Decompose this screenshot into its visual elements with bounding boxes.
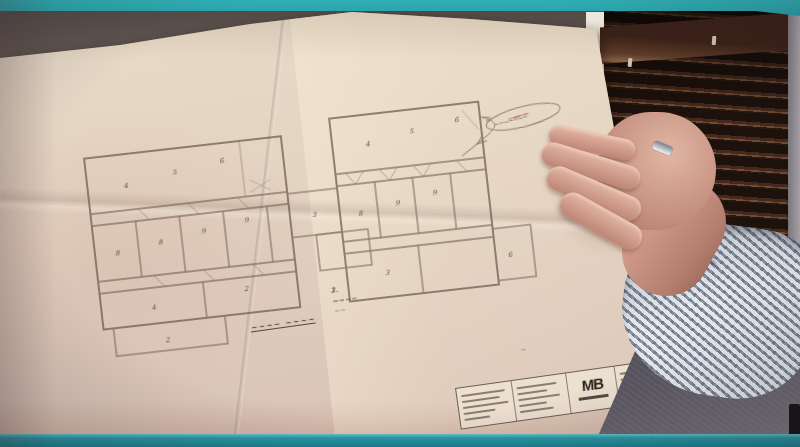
room-number: 3 xyxy=(385,269,391,278)
room-number: 4 xyxy=(365,140,371,149)
room-number: 9 xyxy=(201,227,207,236)
room-number: 2 xyxy=(243,285,249,294)
illegible-text-line xyxy=(518,389,548,395)
room-number: 8 xyxy=(158,238,164,247)
room-number: 8 xyxy=(358,209,364,218)
room-number: 5 xyxy=(172,168,178,177)
room-number: 6 xyxy=(507,251,513,260)
room-number: 6 xyxy=(219,157,225,166)
illegible-text-line xyxy=(464,415,490,421)
illegible-text-line xyxy=(519,401,547,407)
title-block-column-signatures xyxy=(456,381,516,428)
teal-accent-bar-bottom xyxy=(0,434,800,447)
spec-list-line: 3. ~~~~ xyxy=(330,282,358,306)
illegible-text-line xyxy=(464,409,496,415)
room-number: 9 xyxy=(395,199,401,208)
room-number: 6 xyxy=(454,116,460,125)
dark-object-edge xyxy=(789,404,800,437)
title-block-column-fields xyxy=(511,374,571,421)
illegible-text-line xyxy=(519,393,561,401)
room-number: 8 xyxy=(115,249,121,258)
room-number: 3 xyxy=(312,211,318,220)
video-frame: 4 5 6 8 8 9 9 4 2 2 3 4 5 6 8 9 9 3 6 ~~… xyxy=(0,0,800,447)
room-number: 4 xyxy=(123,182,129,191)
room-number: 9 xyxy=(432,189,438,198)
room-number: 4 xyxy=(151,303,157,312)
room-number: 2 xyxy=(165,336,171,345)
room-number: 9 xyxy=(244,216,250,225)
illegible-text-line xyxy=(520,406,554,413)
mb-builders-logo: MB xyxy=(581,375,603,393)
logo-caption-line xyxy=(579,394,609,401)
pencil-stray-mark: ~ xyxy=(520,346,527,355)
illegible-text-line xyxy=(517,382,557,390)
room-number: 5 xyxy=(409,127,415,136)
